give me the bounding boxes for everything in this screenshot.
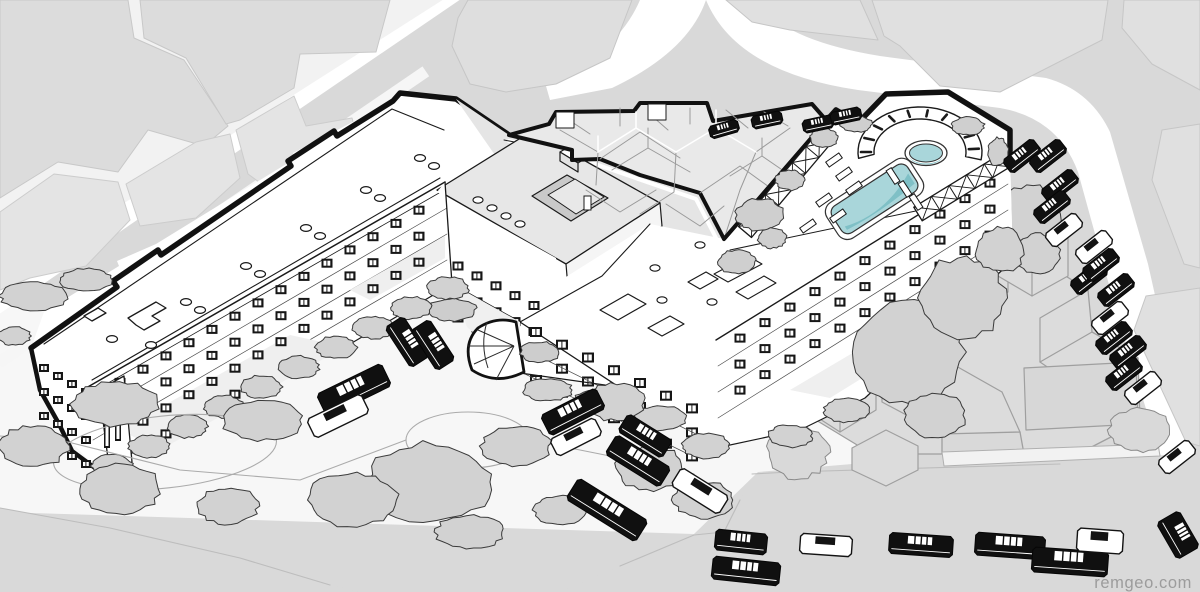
svg-text:remgeo.com: remgeo.com bbox=[1094, 574, 1192, 592]
